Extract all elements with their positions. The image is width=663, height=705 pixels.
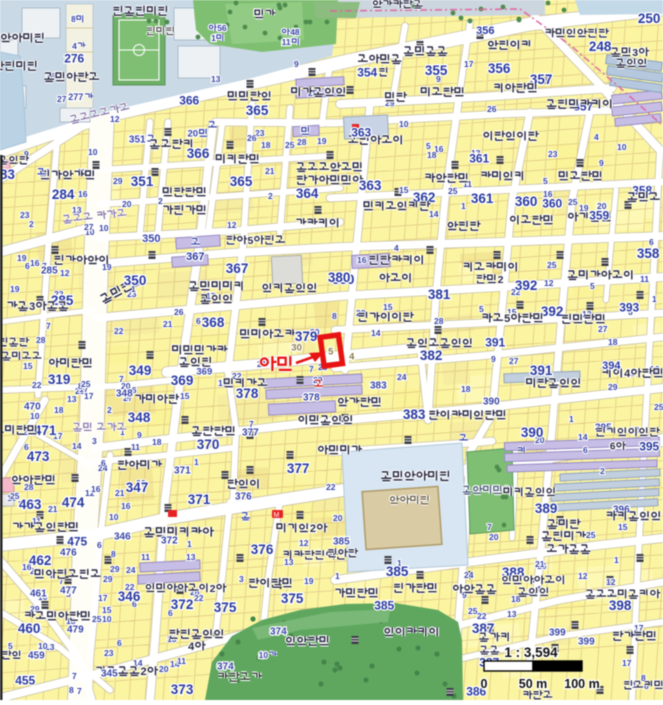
svg-text:18: 18: [608, 337, 618, 347]
svg-text:25: 25: [285, 140, 295, 150]
svg-text:22: 22: [194, 593, 204, 603]
svg-text:20: 20: [333, 513, 343, 523]
svg-text:23: 23: [548, 149, 558, 159]
svg-text:284: 284: [52, 187, 75, 202]
svg-text:360: 360: [515, 194, 538, 209]
svg-text:378: 378: [236, 386, 259, 401]
svg-text:7: 7: [77, 686, 82, 696]
svg-text:285: 285: [41, 266, 58, 277]
svg-text:382: 382: [420, 348, 443, 363]
svg-text:11: 11: [141, 552, 150, 562]
svg-text:23: 23: [20, 210, 30, 220]
svg-text:27: 27: [598, 324, 608, 334]
svg-text:30: 30: [291, 342, 302, 353]
svg-text:375: 375: [214, 600, 237, 615]
svg-text:380: 380: [328, 270, 351, 285]
svg-text:347: 347: [126, 480, 149, 495]
svg-text:20: 20: [122, 199, 132, 209]
svg-text:4: 4: [349, 351, 355, 362]
svg-text:6: 6: [583, 445, 588, 455]
svg-text:369: 369: [196, 366, 212, 377]
svg-text:1: 1: [569, 414, 574, 424]
svg-text:18: 18: [54, 405, 64, 415]
svg-text:377: 377: [242, 428, 259, 439]
svg-text:370: 370: [197, 437, 220, 452]
svg-text:5: 5: [543, 176, 548, 186]
svg-text:22: 22: [32, 380, 42, 390]
svg-text:395: 395: [639, 439, 659, 453]
svg-text:7: 7: [46, 321, 51, 331]
svg-text:24: 24: [397, 372, 407, 382]
svg-text:369: 369: [171, 373, 194, 388]
svg-text:361: 361: [471, 191, 494, 206]
svg-text:18: 18: [152, 437, 162, 447]
svg-text:367: 367: [226, 261, 249, 276]
svg-text:2: 2: [141, 666, 147, 678]
svg-text:360: 360: [542, 196, 562, 210]
svg-text:385: 385: [386, 564, 409, 579]
svg-text:346: 346: [118, 589, 141, 604]
svg-text:392: 392: [515, 278, 538, 293]
svg-text:25: 25: [547, 260, 557, 270]
svg-text:15: 15: [23, 361, 33, 371]
svg-text:10: 10: [38, 641, 48, 651]
svg-text:8: 8: [69, 685, 74, 695]
svg-text:10: 10: [259, 650, 269, 660]
svg-text:25: 25: [92, 614, 102, 624]
svg-text:373: 373: [171, 682, 194, 697]
svg-text:1: 1: [194, 457, 199, 467]
svg-text:377: 377: [287, 461, 310, 476]
svg-text:358: 358: [637, 246, 660, 261]
svg-text:381: 381: [428, 287, 451, 302]
svg-text:473: 473: [27, 449, 50, 464]
svg-text:21: 21: [163, 319, 173, 329]
svg-text:29: 29: [608, 382, 618, 392]
svg-text:463: 463: [19, 497, 42, 512]
svg-text:6: 6: [25, 261, 30, 271]
svg-text:368: 368: [202, 315, 225, 330]
svg-text:19: 19: [304, 576, 314, 586]
svg-text:16: 16: [357, 255, 367, 265]
svg-text:19: 19: [10, 284, 20, 294]
svg-text:2: 2: [310, 523, 316, 535]
svg-text:461: 461: [30, 589, 47, 600]
svg-text:6: 6: [101, 458, 106, 468]
svg-text:477: 477: [60, 586, 77, 597]
svg-text:363: 363: [359, 178, 382, 193]
svg-text:5: 5: [8, 641, 13, 651]
svg-text:371: 371: [174, 466, 191, 477]
svg-text:365: 365: [230, 174, 253, 189]
svg-text:5: 5: [504, 313, 510, 325]
svg-text:9: 9: [491, 354, 496, 364]
svg-text:398: 398: [609, 598, 632, 613]
svg-text:6: 6: [117, 638, 122, 648]
svg-text:19: 19: [317, 136, 327, 146]
svg-text:16: 16: [121, 501, 131, 511]
svg-text:351: 351: [131, 174, 154, 189]
svg-text:394: 394: [602, 360, 621, 372]
svg-text:21: 21: [48, 504, 58, 514]
svg-text:4: 4: [624, 368, 631, 380]
svg-text:345: 345: [101, 669, 118, 680]
svg-text:350: 350: [124, 273, 147, 288]
svg-text:24: 24: [464, 570, 474, 580]
svg-text:460: 460: [18, 621, 41, 636]
svg-text:2: 2: [29, 219, 34, 229]
svg-text:346: 346: [114, 532, 131, 543]
svg-text:3: 3: [632, 47, 638, 59]
svg-text:14: 14: [371, 328, 381, 338]
svg-text:5: 5: [248, 235, 254, 247]
svg-text:383: 383: [403, 407, 426, 422]
svg-text:6: 6: [610, 442, 616, 453]
svg-text:9: 9: [294, 59, 299, 69]
svg-text:9: 9: [137, 430, 142, 440]
svg-text:474: 474: [62, 495, 85, 510]
svg-text:359: 359: [589, 208, 609, 222]
svg-text:399: 399: [578, 637, 595, 648]
svg-text:0: 0: [481, 677, 488, 691]
svg-text:22: 22: [326, 482, 336, 492]
svg-text:356: 356: [488, 61, 511, 76]
svg-text:13: 13: [211, 74, 221, 84]
svg-text:1 : 3,594: 1 : 3,594: [504, 645, 558, 660]
svg-text:4: 4: [394, 243, 399, 253]
svg-text:15: 15: [399, 185, 409, 195]
svg-text:372: 372: [171, 597, 194, 612]
svg-text:15: 15: [102, 605, 112, 615]
svg-text:4: 4: [188, 641, 195, 653]
svg-text:2: 2: [268, 191, 273, 201]
svg-text:277: 277: [68, 92, 83, 102]
svg-text:1: 1: [461, 201, 466, 211]
svg-text:27: 27: [509, 356, 519, 366]
svg-text:4: 4: [72, 41, 77, 51]
svg-text:29: 29: [110, 564, 120, 574]
svg-text:28: 28: [434, 316, 444, 326]
svg-text:11: 11: [177, 656, 186, 666]
svg-text:28: 28: [297, 137, 307, 147]
svg-text:1: 1: [187, 539, 192, 549]
svg-text:15: 15: [383, 302, 393, 312]
svg-text:390: 390: [521, 425, 544, 440]
svg-text:361: 361: [469, 151, 489, 165]
svg-text:391: 391: [530, 363, 553, 378]
svg-text:476: 476: [60, 548, 77, 559]
svg-text:25: 25: [654, 402, 663, 412]
svg-text:14: 14: [578, 432, 588, 442]
svg-text:348: 348: [116, 389, 133, 400]
svg-text:356: 356: [476, 25, 494, 37]
svg-text:276: 276: [64, 51, 84, 65]
svg-text:363: 363: [351, 125, 371, 139]
svg-text:366: 366: [187, 146, 210, 161]
svg-text:12: 12: [578, 571, 588, 581]
svg-text:470: 470: [24, 402, 41, 413]
svg-text:7: 7: [309, 364, 314, 374]
svg-text:27: 27: [57, 94, 67, 104]
svg-text:8: 8: [111, 549, 116, 559]
svg-text:455: 455: [15, 673, 35, 687]
svg-text:22: 22: [114, 326, 124, 336]
svg-text:399: 399: [549, 628, 566, 639]
svg-text:366: 366: [179, 93, 199, 107]
svg-text:376: 376: [251, 542, 274, 557]
svg-text:349: 349: [129, 363, 152, 378]
svg-text:364: 364: [296, 186, 319, 201]
svg-text:22: 22: [477, 611, 487, 621]
svg-text:248: 248: [589, 39, 612, 54]
svg-text:11: 11: [131, 442, 140, 452]
svg-text:29: 29: [113, 176, 123, 186]
svg-text:5: 5: [590, 281, 595, 291]
svg-text:7: 7: [487, 522, 492, 532]
svg-text:250: 250: [638, 11, 661, 26]
svg-text:7: 7: [119, 374, 124, 384]
svg-text:354: 354: [357, 65, 377, 79]
svg-text:2: 2: [107, 405, 112, 415]
svg-text:23: 23: [104, 648, 114, 658]
svg-text:6: 6: [97, 540, 102, 550]
svg-text:25: 25: [568, 197, 578, 207]
svg-text:355: 355: [425, 63, 448, 78]
svg-text:18: 18: [461, 384, 471, 394]
svg-text:367: 367: [186, 251, 204, 263]
svg-text:10: 10: [102, 614, 112, 624]
svg-text:14: 14: [429, 209, 439, 219]
svg-text:5: 5: [328, 346, 334, 357]
svg-text:14: 14: [72, 441, 82, 451]
svg-text:365: 365: [246, 103, 269, 118]
svg-text:10: 10: [617, 142, 627, 152]
svg-text:6: 6: [196, 316, 201, 326]
svg-text:7: 7: [72, 671, 77, 681]
svg-text:392: 392: [541, 304, 564, 319]
svg-text:M: M: [274, 512, 280, 519]
svg-text:375: 375: [281, 591, 304, 606]
svg-text:18: 18: [427, 150, 437, 160]
svg-text:26: 26: [174, 307, 184, 317]
svg-text:1: 1: [652, 294, 657, 304]
svg-text:374: 374: [270, 627, 287, 638]
svg-text:459: 459: [28, 651, 45, 662]
svg-text:3: 3: [29, 301, 35, 313]
svg-text:50 m: 50 m: [519, 677, 548, 691]
svg-text:2: 2: [498, 274, 504, 286]
svg-text:16: 16: [91, 484, 101, 494]
svg-text:2: 2: [158, 196, 163, 206]
svg-text:21: 21: [265, 166, 275, 176]
svg-text:12: 12: [60, 268, 70, 278]
svg-text:10: 10: [109, 512, 119, 522]
svg-text:2: 2: [210, 583, 216, 595]
svg-text:385: 385: [333, 537, 350, 548]
svg-text:28: 28: [36, 335, 46, 345]
svg-text:479: 479: [67, 625, 84, 636]
svg-text:26: 26: [247, 133, 257, 143]
svg-text:3: 3: [239, 574, 244, 584]
svg-text:372: 372: [161, 536, 178, 547]
svg-text:13: 13: [186, 552, 196, 562]
svg-text:17: 17: [98, 593, 108, 603]
svg-text:15: 15: [618, 522, 628, 532]
svg-text:371: 371: [188, 492, 211, 507]
svg-text:376: 376: [235, 492, 252, 503]
svg-text:18: 18: [261, 140, 271, 150]
svg-text:15: 15: [180, 391, 190, 401]
svg-text:462: 462: [29, 553, 52, 568]
svg-text:12: 12: [299, 538, 309, 548]
svg-text:391: 391: [485, 335, 505, 349]
svg-text:21: 21: [115, 488, 125, 498]
svg-text:12: 12: [227, 220, 237, 230]
svg-text:26: 26: [487, 104, 497, 114]
svg-text:100 m: 100 m: [564, 677, 599, 691]
svg-text:389: 389: [535, 501, 558, 516]
svg-text:10: 10: [399, 119, 409, 129]
svg-text:374: 374: [217, 662, 234, 673]
svg-text:12: 12: [110, 114, 120, 124]
svg-text:56: 56: [217, 23, 227, 33]
svg-text:20: 20: [188, 128, 199, 139]
svg-text:48: 48: [290, 27, 300, 37]
svg-text:20: 20: [159, 664, 169, 674]
svg-text:11: 11: [640, 274, 649, 284]
svg-text:16: 16: [78, 189, 88, 199]
svg-text:351: 351: [129, 135, 146, 146]
svg-text:350: 350: [142, 233, 160, 245]
svg-text:17: 17: [464, 59, 474, 69]
svg-text:9: 9: [599, 158, 604, 168]
svg-text:8: 8: [332, 311, 337, 321]
svg-text:1: 1: [335, 571, 340, 581]
svg-text:29: 29: [103, 574, 113, 584]
svg-text:3: 3: [92, 436, 97, 446]
svg-text:17: 17: [622, 658, 632, 668]
svg-text:11: 11: [282, 37, 291, 47]
svg-text:20: 20: [489, 532, 499, 542]
svg-text:21: 21: [535, 559, 545, 569]
svg-text:475: 475: [67, 534, 87, 548]
svg-text:348: 348: [128, 410, 151, 425]
svg-text:12: 12: [606, 577, 616, 587]
svg-text:319: 319: [48, 372, 71, 387]
svg-text:16: 16: [30, 258, 40, 268]
svg-text:10: 10: [88, 147, 98, 157]
svg-text:390: 390: [483, 397, 500, 408]
svg-text:10: 10: [99, 223, 109, 233]
svg-text:383: 383: [370, 381, 387, 392]
svg-text:25: 25: [81, 379, 91, 389]
svg-text:2: 2: [600, 466, 605, 476]
svg-text:393: 393: [619, 300, 639, 314]
svg-text:27: 27: [84, 222, 94, 232]
svg-text:25: 25: [586, 530, 596, 540]
svg-text:25: 25: [448, 186, 458, 196]
svg-text:24: 24: [126, 565, 136, 575]
svg-text:385: 385: [374, 598, 394, 612]
svg-text:13: 13: [507, 609, 517, 619]
svg-text:1: 1: [614, 555, 619, 565]
svg-text:17: 17: [84, 391, 94, 401]
svg-text:4: 4: [594, 132, 599, 142]
svg-text:12: 12: [544, 278, 554, 288]
svg-text:378: 378: [303, 393, 320, 404]
